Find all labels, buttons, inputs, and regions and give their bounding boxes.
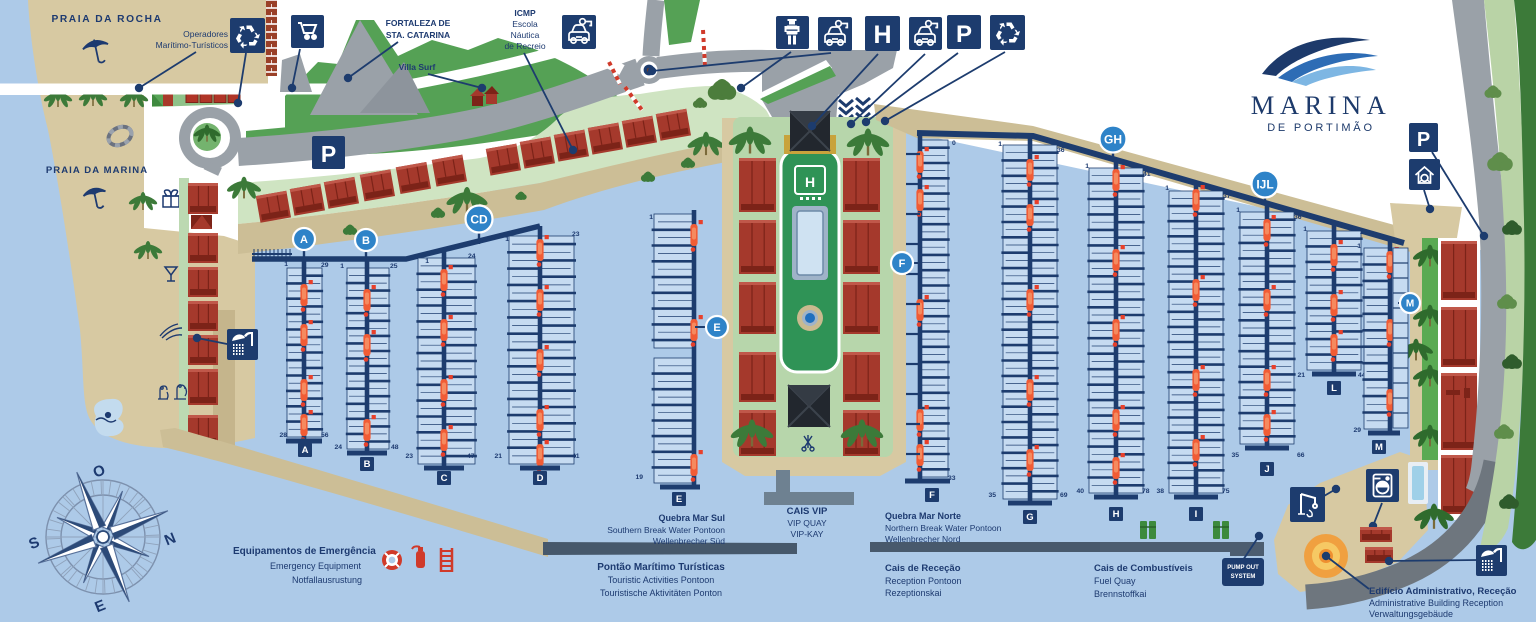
svg-text:28: 28 <box>279 432 287 439</box>
svg-text:P: P <box>1417 129 1430 151</box>
svg-text:24: 24 <box>468 253 476 260</box>
svg-text:J: J <box>1264 464 1269 475</box>
svg-text:78: 78 <box>1142 488 1150 495</box>
svg-text:Operadores: Operadores <box>183 29 228 39</box>
svg-text:IJL: IJL <box>1256 177 1273 191</box>
svg-text:Náutica: Náutica <box>511 30 540 40</box>
svg-text:H: H <box>1113 509 1120 520</box>
svg-text:I: I <box>1195 509 1198 520</box>
svg-text:1: 1 <box>340 263 344 270</box>
svg-text:M: M <box>1406 299 1414 310</box>
svg-text:37: 37 <box>1223 193 1231 200</box>
svg-text:48: 48 <box>391 444 399 451</box>
svg-text:Wellenbrecher Nord: Wellenbrecher Nord <box>885 534 961 544</box>
svg-text:36: 36 <box>1057 147 1065 154</box>
svg-text:F: F <box>929 490 935 501</box>
svg-text:40: 40 <box>1076 488 1084 495</box>
svg-text:B: B <box>364 459 371 470</box>
svg-text:H: H <box>805 174 815 190</box>
svg-text:C: C <box>441 473 448 484</box>
svg-text:E: E <box>676 494 682 505</box>
svg-text:ICMP: ICMP <box>514 8 536 18</box>
svg-text:1: 1 <box>505 236 509 243</box>
svg-text:P: P <box>321 141 336 167</box>
svg-text:A: A <box>300 234 308 246</box>
svg-text:Cais de Receção: Cais de Receção <box>885 563 961 574</box>
svg-text:Touristic Activities Pontoon: Touristic Activities Pontoon <box>608 575 715 585</box>
svg-text:G: G <box>1026 512 1033 523</box>
svg-text:DE PORTIMÃO: DE PORTIMÃO <box>1267 121 1375 134</box>
svg-text:1: 1 <box>1357 243 1361 250</box>
svg-text:1: 1 <box>1236 207 1240 214</box>
svg-text:B: B <box>362 235 370 247</box>
svg-text:1: 1 <box>425 258 429 265</box>
svg-text:1: 1 <box>1303 226 1307 233</box>
svg-text:M: M <box>1375 442 1383 453</box>
svg-text:69: 69 <box>1060 492 1068 499</box>
svg-text:33: 33 <box>948 475 956 482</box>
svg-text:41: 41 <box>1143 171 1151 178</box>
svg-text:E: E <box>713 322 720 334</box>
svg-text:23: 23 <box>572 231 580 238</box>
svg-text:Quebra Mar Sul: Quebra Mar Sul <box>658 513 725 523</box>
svg-text:SYSTEM: SYSTEM <box>1231 574 1256 580</box>
svg-text:Rezeptionskai: Rezeptionskai <box>885 588 942 598</box>
svg-text:35: 35 <box>988 492 996 499</box>
svg-text:PRAIA DA MARINA: PRAIA DA MARINA <box>46 165 148 176</box>
svg-text:1: 1 <box>998 141 1002 148</box>
svg-text:A: A <box>302 445 309 456</box>
svg-text:47: 47 <box>467 453 475 460</box>
svg-text:H: H <box>873 21 891 49</box>
svg-text:19: 19 <box>635 474 643 481</box>
svg-text:41: 41 <box>572 453 580 460</box>
svg-text:66: 66 <box>1297 452 1305 459</box>
svg-text:MARINA: MARINA <box>1251 90 1391 120</box>
svg-text:FORTALEZA DE: FORTALEZA DE <box>386 18 451 28</box>
svg-text:0: 0 <box>952 140 956 147</box>
svg-text:Verwaltungsgebäude: Verwaltungsgebäude <box>1369 609 1453 619</box>
svg-text:1: 1 <box>649 214 653 221</box>
svg-text:CD: CD <box>470 212 488 226</box>
svg-text:F: F <box>899 258 906 270</box>
svg-text:GH: GH <box>1104 132 1122 146</box>
svg-text:Touristische Aktivitäten Ponto: Touristische Aktivitäten Ponton <box>600 588 722 598</box>
svg-text:36: 36 <box>1294 214 1302 221</box>
svg-text:1: 1 <box>1165 185 1169 192</box>
svg-text:Equipamentos de Emergência: Equipamentos de Emergência <box>233 546 376 557</box>
svg-text:Northern Break Water Pontoon: Northern Break Water Pontoon <box>885 523 1002 533</box>
svg-text:24: 24 <box>334 444 342 451</box>
svg-text:29: 29 <box>1353 427 1361 434</box>
svg-text:Fuel Quay: Fuel Quay <box>1094 576 1136 586</box>
svg-text:VIP-KAY: VIP-KAY <box>791 529 824 539</box>
svg-text:Escola: Escola <box>512 19 538 29</box>
svg-text:21: 21 <box>1297 372 1305 379</box>
svg-text:STA. CATARINA: STA. CATARINA <box>386 30 450 40</box>
svg-text:Reception Pontoon: Reception Pontoon <box>885 576 962 586</box>
svg-text:Quebra Mar Norte: Quebra Mar Norte <box>885 511 961 521</box>
svg-text:75: 75 <box>1222 488 1230 495</box>
svg-text:Edifício Administrativo, Receç: Edifício Administrativo, Receção <box>1369 586 1517 597</box>
svg-text:21: 21 <box>494 453 502 460</box>
svg-text:P: P <box>956 21 972 48</box>
svg-text:22: 22 <box>1360 229 1368 236</box>
svg-text:38: 38 <box>1156 488 1164 495</box>
svg-text:56: 56 <box>321 432 329 439</box>
svg-text:25: 25 <box>390 263 398 270</box>
svg-text:CAIS VIP: CAIS VIP <box>787 506 828 517</box>
svg-text:Administrative Building Recept: Administrative Building Reception <box>1369 598 1503 608</box>
svg-text:Brennstoffkai: Brennstoffkai <box>1094 589 1146 599</box>
svg-text:PUMP OUT: PUMP OUT <box>1227 565 1259 571</box>
svg-text:L: L <box>1331 383 1337 394</box>
svg-text:PRAIA DA ROCHA: PRAIA DA ROCHA <box>51 14 162 25</box>
svg-text:Villa Surf: Villa Surf <box>399 62 436 72</box>
svg-text:D: D <box>537 473 544 484</box>
svg-text:Pontão Marítimo Turísticas: Pontão Marítimo Turísticas <box>597 562 725 573</box>
svg-text:1: 1 <box>1085 163 1089 170</box>
svg-text:Notfallausrustung: Notfallausrustung <box>292 575 362 585</box>
svg-text:23: 23 <box>405 453 413 460</box>
svg-text:VIP QUAY: VIP QUAY <box>787 518 827 528</box>
svg-text:Marítimo-Turísticos: Marítimo-Turísticos <box>156 40 228 50</box>
svg-text:de Recreio: de Recreio <box>504 41 545 51</box>
svg-text:29: 29 <box>321 262 329 269</box>
svg-text:Cais de Combustíveis: Cais de Combustíveis <box>1094 563 1193 574</box>
svg-text:35: 35 <box>1231 452 1239 459</box>
svg-text:Wellenbrecher Süd: Wellenbrecher Süd <box>653 536 725 546</box>
svg-text:1: 1 <box>284 261 288 268</box>
svg-text:Emergency Equipment: Emergency Equipment <box>270 561 362 571</box>
svg-text:Southern Break Water Pontoon: Southern Break Water Pontoon <box>607 525 725 535</box>
